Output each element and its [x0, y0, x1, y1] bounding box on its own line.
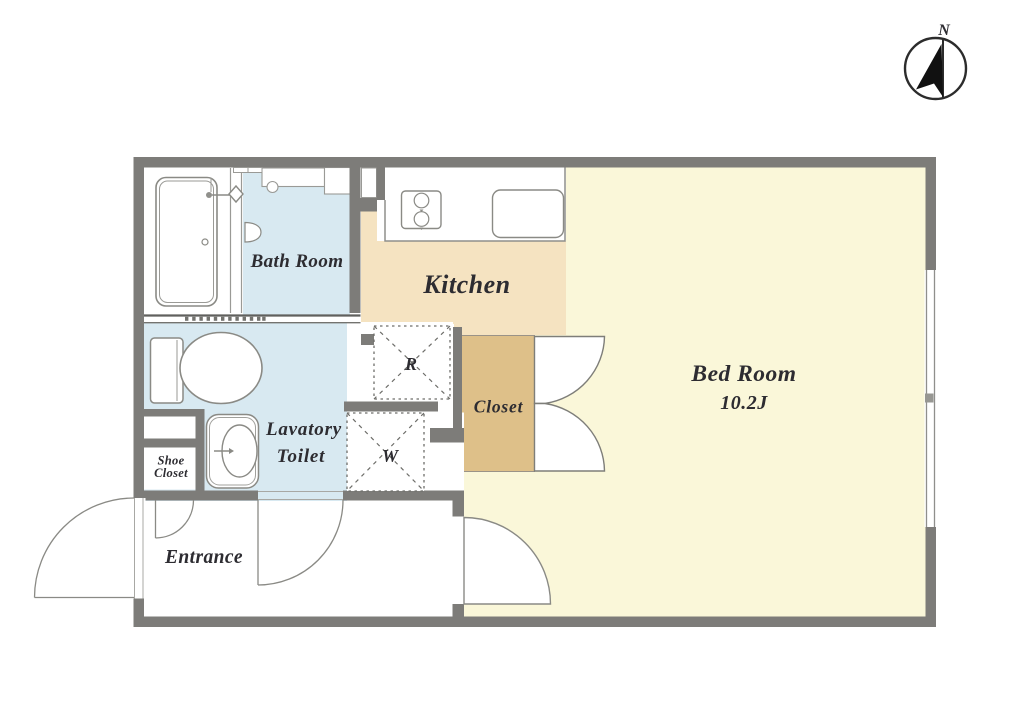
svg-text:Toilet: Toilet	[277, 446, 325, 467]
svg-text:Closet: Closet	[154, 466, 188, 480]
svg-text:Kitchen: Kitchen	[422, 270, 510, 299]
svg-text:10.2J: 10.2J	[720, 392, 768, 414]
svg-text:Bath Room: Bath Room	[250, 251, 344, 272]
svg-text:Closet: Closet	[474, 397, 524, 417]
svg-text:N: N	[937, 22, 951, 39]
svg-text:Entrance: Entrance	[164, 547, 243, 568]
svg-text:Lavatory: Lavatory	[265, 419, 342, 440]
svg-text:W: W	[382, 446, 400, 466]
svg-text:R: R	[404, 354, 417, 374]
svg-text:Bed Room: Bed Room	[690, 361, 796, 387]
